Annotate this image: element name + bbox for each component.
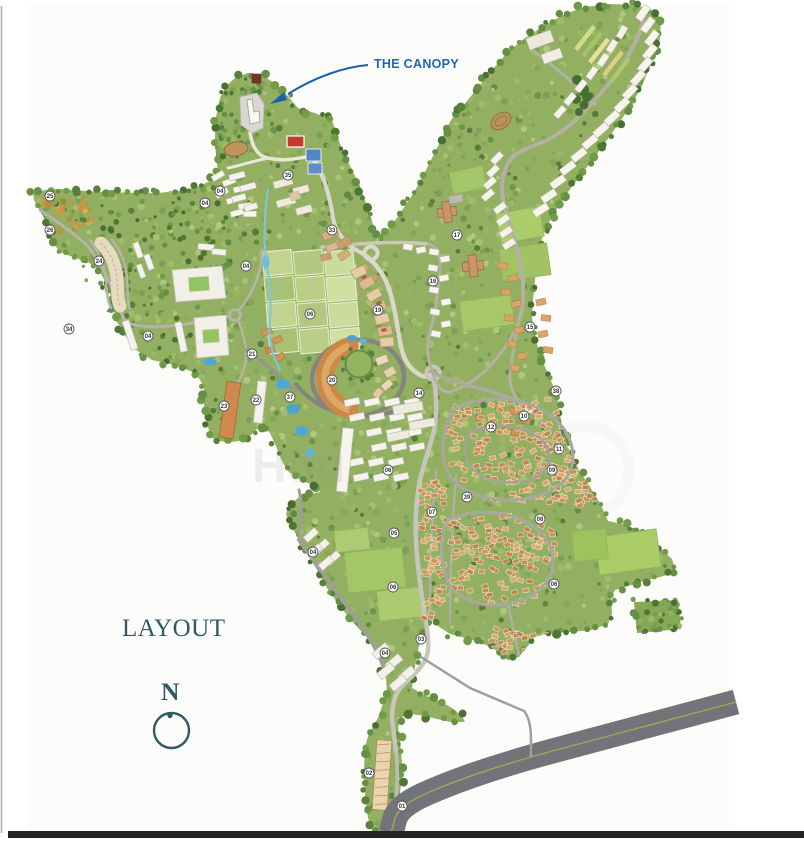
svg-text:04: 04 — [145, 334, 152, 340]
svg-text:04: 04 — [217, 189, 224, 195]
svg-text:10: 10 — [521, 414, 528, 420]
svg-text:21: 21 — [249, 352, 256, 358]
svg-text:02: 02 — [366, 771, 373, 777]
svg-text:01: 01 — [399, 804, 406, 810]
svg-text:06: 06 — [390, 585, 397, 591]
svg-text:11: 11 — [556, 447, 563, 453]
svg-text:04: 04 — [310, 550, 317, 556]
svg-text:16: 16 — [430, 279, 437, 285]
svg-text:07: 07 — [429, 510, 436, 516]
svg-text:05: 05 — [391, 531, 398, 537]
svg-text:04: 04 — [243, 264, 250, 270]
svg-text:Hou: Hou — [252, 440, 345, 493]
svg-text:14: 14 — [416, 391, 423, 397]
svg-text:25: 25 — [47, 194, 54, 200]
svg-text:19: 19 — [375, 308, 382, 314]
svg-text:08: 08 — [537, 517, 544, 523]
svg-text:15: 15 — [527, 325, 534, 331]
svg-text:LAYOUT: LAYOUT — [122, 615, 225, 642]
svg-text:03: 03 — [418, 637, 425, 643]
svg-text:39: 39 — [464, 495, 471, 501]
svg-text:37: 37 — [287, 395, 294, 401]
svg-text:12: 12 — [488, 425, 495, 431]
svg-text:23: 23 — [221, 404, 228, 410]
svg-text:N: N — [161, 677, 180, 706]
svg-text:26: 26 — [47, 228, 54, 234]
svg-text:35: 35 — [285, 173, 292, 179]
svg-text:33: 33 — [329, 228, 336, 234]
svg-text:04: 04 — [202, 201, 209, 207]
svg-text:THE CANOPY: THE CANOPY — [374, 57, 459, 71]
svg-text:17: 17 — [454, 233, 461, 239]
svg-text:24: 24 — [96, 259, 103, 265]
svg-text:09: 09 — [549, 468, 556, 474]
svg-text:04: 04 — [382, 651, 389, 657]
svg-text:20: 20 — [329, 378, 336, 384]
svg-text:06: 06 — [307, 312, 314, 318]
svg-text:06: 06 — [385, 468, 392, 474]
svg-text:22: 22 — [253, 398, 260, 404]
svg-text:34: 34 — [66, 327, 73, 333]
svg-text:06: 06 — [551, 582, 558, 588]
svg-text:38: 38 — [553, 389, 560, 395]
